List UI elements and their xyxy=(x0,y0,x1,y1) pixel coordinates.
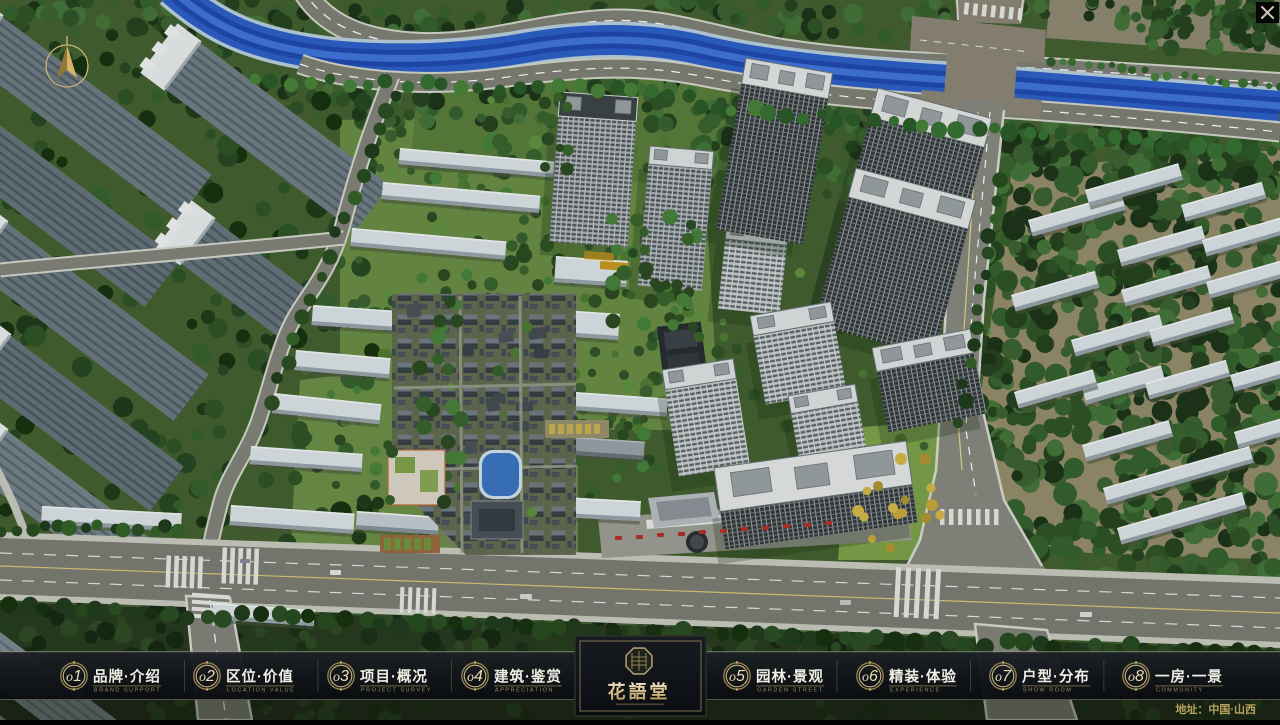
svg-text:建筑·鉴赏: 建筑·鉴赏 xyxy=(494,668,562,686)
svg-text:o3: o3 xyxy=(333,668,349,685)
svg-text:LOCATION VALUE: LOCATION VALUE xyxy=(227,688,295,694)
svg-text:SHOW ROOM: SHOW ROOM xyxy=(1023,688,1072,694)
svg-text:EXPERIENCE: EXPERIENCE xyxy=(890,688,941,694)
svg-text:o1: o1 xyxy=(66,668,82,685)
svg-text:花語堂: 花語堂 xyxy=(608,681,671,702)
svg-text:o7: o7 xyxy=(995,668,1012,685)
svg-text:项目·概况: 项目·概况 xyxy=(360,668,428,686)
svg-text:COMMUNITY: COMMUNITY xyxy=(1156,688,1204,694)
svg-text:PROJECT SURVEY: PROJECT SURVEY xyxy=(361,688,432,694)
svg-text:地址：中国·山西: 地址：中国·山西 xyxy=(1175,702,1256,716)
svg-text:户型·分布: 户型·分布 xyxy=(1022,668,1090,686)
svg-text:一房·一景: 一房·一景 xyxy=(1155,668,1223,686)
svg-text:o5: o5 xyxy=(729,668,745,685)
svg-text:o8: o8 xyxy=(1128,668,1144,685)
svg-text:BRAND SUPPORT: BRAND SUPPORT xyxy=(94,688,161,694)
svg-text:园林·景观: 园林·景观 xyxy=(756,668,824,686)
svg-text:区位·价值: 区位·价值 xyxy=(226,668,294,686)
svg-text:o4: o4 xyxy=(467,668,483,685)
svg-text:品牌·介绍: 品牌·介绍 xyxy=(93,668,161,686)
svg-text:GARDEN STREET: GARDEN STREET xyxy=(757,688,824,694)
svg-text:o2: o2 xyxy=(199,668,215,685)
svg-text:o6: o6 xyxy=(862,668,878,685)
svg-text:APPRECIATION: APPRECIATION xyxy=(495,688,554,694)
svg-text:精装·体验: 精装·体验 xyxy=(889,668,957,686)
